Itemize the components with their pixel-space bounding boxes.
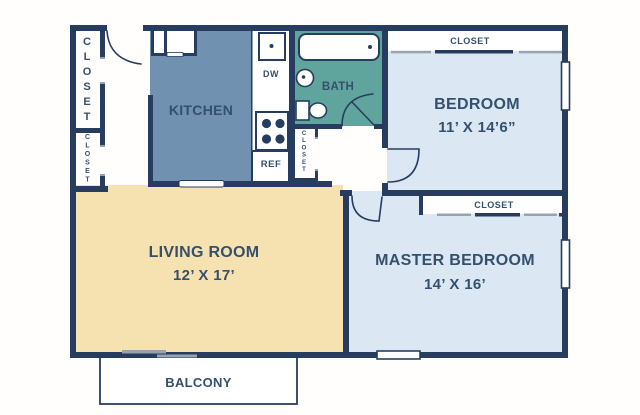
living-room-label: LIVING ROOM (100, 244, 308, 262)
master-closet-slider-stub (559, 213, 564, 217)
kitchen-sink-dot (270, 44, 274, 48)
entry-closet-wall-1 (100, 31, 105, 57)
master-left-wall (343, 190, 349, 353)
pantry-wall-3 (164, 31, 167, 56)
bath-bottom-wall-left (289, 124, 342, 129)
stove (256, 112, 288, 150)
balcony-slider-gray-2 (157, 355, 197, 358)
hall-closet-bottom-wall (289, 178, 318, 183)
hall-closet-label: CLOSET (301, 131, 307, 174)
toilet-bowl (310, 103, 327, 118)
bathtub (299, 34, 379, 60)
entry-closet-lower-label: CLOSET (84, 134, 91, 185)
bedroom-closet-slider-gray-1 (391, 51, 431, 54)
jamb-1 (100, 57, 105, 59)
burner-4 (275, 134, 284, 143)
hall-closet-wall-1 (315, 129, 318, 137)
master-top-wall-right (386, 190, 568, 196)
entry-closet-divider (70, 128, 105, 133)
kitchen-bottom-wall-left (148, 181, 179, 187)
entry-door-arc (107, 31, 141, 64)
living-room-dimensions: 12’ X 17’ (100, 267, 308, 284)
master-closet-slider-dark (475, 213, 520, 217)
floor-plan: KITCHEN BATH BEDROOM 11’ X 14’6” LIVING … (0, 0, 640, 415)
entry-closet2-wall-1 (100, 133, 105, 145)
kitchen-pantry-b (167, 31, 194, 54)
burner-3 (262, 134, 271, 143)
master-closet-slider-gray-1 (437, 214, 471, 217)
balcony-slider-gray-1 (122, 350, 166, 354)
master-closet-label: CLOSET (424, 200, 564, 210)
master-window-right (562, 240, 570, 288)
jamb-4 (100, 174, 105, 176)
master-window-bottom (377, 351, 420, 359)
top-wall-right (143, 25, 568, 31)
entry-closet-upper-label: CLOSET (81, 36, 93, 126)
pantry-door-mark (167, 53, 183, 57)
pantry-wall-1 (151, 31, 154, 56)
jamb-6 (315, 169, 318, 171)
master-closet-slider-gray-2 (524, 214, 557, 217)
bath-sink-dot (302, 75, 306, 79)
toilet-tank (296, 101, 309, 120)
burner-2 (275, 119, 284, 128)
balcony-label: BALCONY (100, 376, 297, 391)
jamb-5 (315, 137, 318, 139)
refrigerator-label: REF (252, 160, 290, 171)
entry-closet-wall-2 (100, 84, 105, 133)
master-bedroom-label: MASTER BEDROOM (355, 252, 555, 270)
bedroom-dimensions: 11’ X 14’6” (387, 119, 567, 136)
master-closet-stub (419, 196, 423, 215)
kitchen-label: KITCHEN (150, 102, 252, 118)
bedroom-label: BEDROOM (387, 96, 567, 114)
tub-faucet-dot (368, 45, 372, 49)
burner-1 (262, 119, 271, 128)
jamb-3 (100, 145, 105, 147)
hall-closet-wall-2 (315, 171, 318, 178)
bath-label: BATH (310, 81, 366, 94)
master-bedroom-dimensions: 14’ X 16’ (355, 276, 555, 293)
bedroom-closet-slider-dark (435, 50, 513, 54)
dishwasher-label: DW (252, 69, 290, 79)
bedroom-closet-slider-gray-2 (519, 51, 562, 54)
entry-closet2-bottom-wall (70, 186, 108, 192)
pantry-wall-4 (194, 31, 197, 56)
kitchen-pass-through-opening (179, 181, 224, 188)
jamb-2 (100, 82, 105, 84)
bedroom-closet-label: CLOSET (390, 36, 550, 46)
